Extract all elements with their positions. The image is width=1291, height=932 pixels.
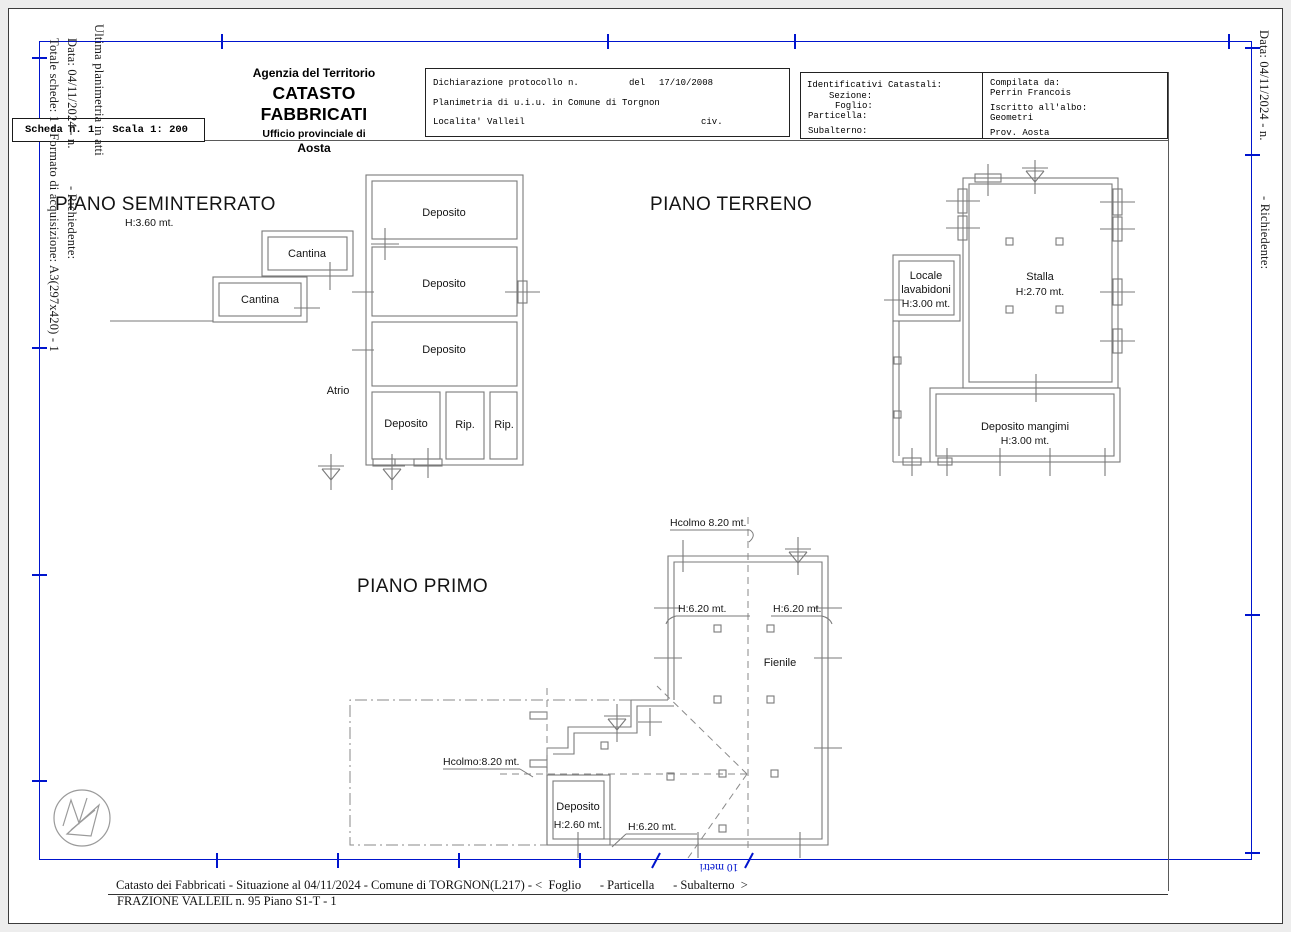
particella-label: Particella: (808, 112, 867, 121)
planimetria-line: Planimetria di u.i.u. in Comune di Torgn… (433, 99, 660, 108)
sezione-label: Sezione: (829, 92, 872, 101)
frame-tick (221, 34, 223, 49)
protocol-label: Dichiarazione protocollo n. (433, 79, 579, 88)
scala-label: Scala 1: 200 (112, 124, 188, 136)
sheet-right-border (1168, 72, 1169, 891)
scale-bar-label: 10 metri (692, 861, 746, 873)
room-mangimi: Deposito mangimi (981, 421, 1069, 433)
catastali-box: Identificativi Catastali: Sezione: Fogli… (800, 72, 1168, 139)
frame-tick (32, 780, 47, 782)
margin-ultima-planimetria: Ultima planimetria in atti (91, 24, 106, 156)
albo-label: Iscritto all'albo: (990, 104, 1087, 113)
frame-tick (337, 853, 339, 868)
footer-frazione-line: FRAZIONE VALLEIL n. 95 Piano S1-T - 1 (117, 894, 337, 909)
room-rip-2: Rip. (494, 419, 514, 431)
room-deposito-2: Deposito (422, 278, 465, 290)
plan-primo: PIANO PRIMO Hcolmo 8.20 mt. Hcolmo:8.20 … (340, 505, 850, 865)
north-arrow-icon (46, 770, 116, 858)
terreno-title: PIANO TERRENO (650, 194, 812, 215)
frame-tick (1245, 154, 1260, 156)
room-cantina-2: Cantina (241, 294, 280, 306)
door-arrow-icon (604, 704, 630, 742)
seminterrato-height: H:3.60 mt. (125, 217, 173, 229)
room-locale-height: H:3.00 mt. (902, 298, 950, 310)
room-mangimi-height: H:3.00 mt. (1001, 435, 1049, 447)
room-deposito-4: Deposito (384, 418, 427, 430)
label-leader-lines (443, 530, 832, 847)
margin-data-left: Data: 04/11/2024 - n. (64, 38, 79, 149)
frame-tick (794, 34, 796, 49)
frame-tick (216, 853, 218, 868)
cadastral-document: Agenzia del Territorio CATASTO FABBRICAT… (0, 0, 1291, 932)
hcolmo-left-label: Hcolmo:8.20 mt. (443, 756, 519, 768)
room-locale-line1: Locale (910, 270, 942, 282)
plan-terreno: PIANO TERRENO Stalla H:2.70 mt. Locale l… (640, 160, 1140, 480)
plan-seminterrato: PIANO SEMINTERRATO H:3.60 mt. Deposito D… (40, 160, 540, 490)
margin-data-right: Data: 04/11/2024 - n. (1256, 30, 1271, 141)
del-label: del (629, 79, 645, 88)
roof-ridge-lines (500, 517, 748, 858)
frame-tick (607, 34, 609, 49)
footer-situazione-line: Catasto dei Fabbricati - Situazione al 0… (108, 878, 1168, 895)
room-deposito-primo-height: H:2.60 mt. (554, 819, 602, 831)
primo-title: PIANO PRIMO (357, 576, 488, 597)
prov-label: Prov. Aosta (990, 129, 1049, 138)
compiler-name: Perrin Francois (990, 89, 1071, 98)
protocol-date: 17/10/2008 (659, 79, 713, 88)
door-arrow-icon (1022, 160, 1048, 194)
civ-label: civ. (701, 118, 723, 127)
agency-name: Agenzia del Territorio (228, 66, 400, 80)
location-label: Localita' Valleil (433, 118, 525, 127)
seminterrato-title: PIANO SEMINTERRATO (55, 194, 276, 215)
room-stalla-height: H:2.70 mt. (1016, 286, 1064, 298)
declaration-box: Dichiarazione protocollo n. del 17/10/20… (425, 68, 790, 137)
margin-richiedente-right: - Richiedente: (1257, 196, 1272, 269)
subalterno-label: Subalterno: (808, 127, 867, 136)
frame-tick (32, 574, 47, 576)
catastali-title: Identificativi Catastali: (807, 81, 942, 90)
frame-tick (1228, 34, 1230, 49)
hcolmo-top-label: Hcolmo 8.20 mt. (670, 517, 746, 529)
h620-bottom-label: H:6.20 mt. (628, 821, 676, 833)
room-stalla: Stalla (1026, 271, 1054, 283)
room-deposito-3: Deposito (422, 344, 465, 356)
albo-value: Geometri (990, 114, 1033, 123)
office-city: Aosta (228, 141, 400, 155)
room-atrio: Atrio (327, 385, 350, 397)
room-rip-1: Rip. (455, 419, 475, 431)
catastali-divider (982, 72, 983, 139)
frame-tick (32, 57, 47, 59)
office-label: Ufficio provinciale di (228, 128, 400, 140)
scheda-scala-box: Scheda n. 1 Scala 1: 200 (12, 118, 205, 142)
h620-left-label: H:6.20 mt. (678, 603, 726, 615)
agency-header: Agenzia del Territorio CATASTO FABBRICAT… (228, 66, 400, 155)
door-arrow-icon (318, 454, 344, 490)
h620-right-label: H:6.20 mt. (773, 603, 821, 615)
room-locale-line2: lavabidoni (901, 284, 951, 296)
frame-tick (1245, 852, 1260, 854)
catasto-title: CATASTO FABBRICATI (228, 83, 400, 125)
frame-tick (1245, 614, 1260, 616)
room-cantina-1: Cantina (288, 248, 327, 260)
seminterrato-walls (110, 175, 540, 478)
room-deposito-primo: Deposito (556, 801, 599, 813)
room-deposito-1: Deposito (422, 207, 465, 219)
room-fienile: Fienile (764, 657, 796, 669)
foglio-label: Foglio: (835, 102, 873, 111)
compiler-label: Compilata da: (990, 79, 1060, 88)
